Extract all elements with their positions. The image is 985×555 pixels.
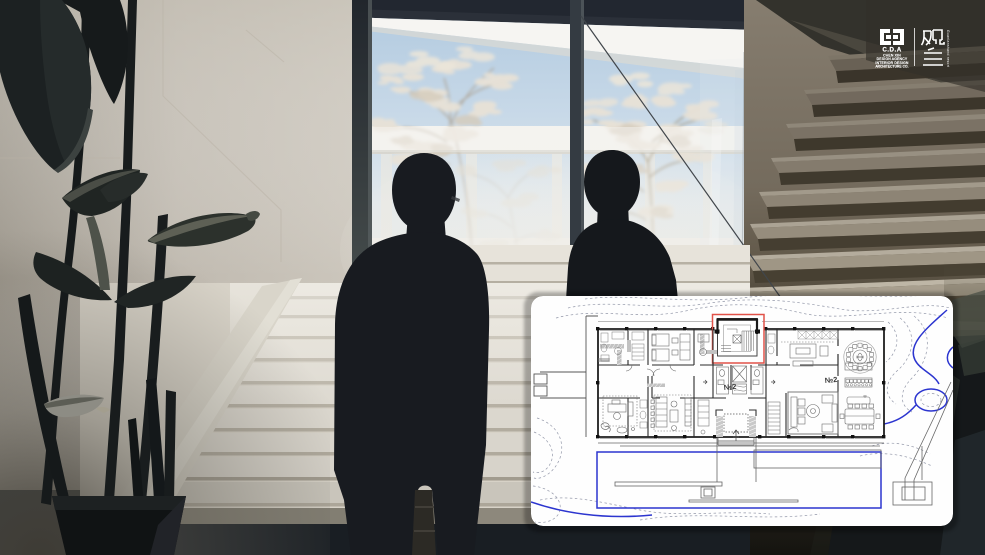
svg-text:№2: №2 bbox=[723, 382, 736, 392]
svg-text:№2: №2 bbox=[824, 375, 837, 385]
svg-text:Guanlanshand resort: Guanlanshand resort bbox=[946, 30, 950, 67]
svg-text:C.D.A: C.D.A bbox=[882, 47, 901, 54]
svg-text:ARCHITECTURE CO.: ARCHITECTURE CO. bbox=[875, 64, 908, 68]
